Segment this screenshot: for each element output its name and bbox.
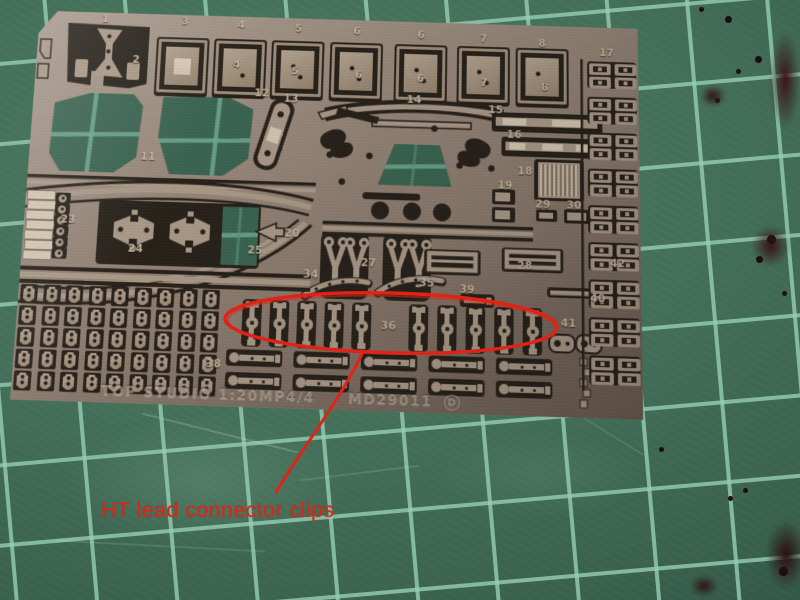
part-number-2: 2 — [132, 54, 140, 66]
photo-etch-sheet: 1234566784566781712131415161118192930232… — [10, 11, 643, 420]
mat-stain — [766, 520, 800, 590]
part-number-1: 1 — [102, 13, 110, 24]
part-number-18: 18 — [518, 165, 533, 177]
part-number-12: 12 — [254, 87, 269, 99]
mat-specks — [0, 0, 3, 3]
part-number-6: 6 — [353, 26, 361, 38]
annotation-label: HT lead connector clips — [101, 498, 334, 523]
part-number-24: 24 — [127, 243, 143, 256]
part-number-5: 5 — [295, 23, 303, 35]
part-number-17: 17 — [599, 47, 614, 59]
part-number-6: 6 — [355, 69, 363, 81]
mat-stain — [752, 225, 790, 267]
part-number-20: 20 — [284, 227, 300, 239]
part-number-34: 34 — [303, 268, 319, 281]
part-number-6: 6 — [417, 73, 425, 85]
part-number-28: 28 — [517, 260, 532, 273]
part-number-11: 11 — [140, 151, 156, 163]
part-number-13: 13 — [283, 93, 298, 105]
part-number-15: 15 — [488, 104, 503, 116]
part-number-14: 14 — [407, 94, 422, 106]
part-number-39: 39 — [459, 283, 475, 296]
photo-of-photoetch-sheet: 1234566784566781712131415161118192930232… — [0, 0, 800, 600]
mat-stain — [690, 575, 718, 597]
mat-scuff — [430, 430, 650, 520]
part-number-8: 8 — [538, 38, 545, 50]
part-number-40: 40 — [590, 293, 606, 306]
part-number-8: 8 — [541, 82, 548, 94]
part-number-38: 38 — [205, 358, 221, 371]
part-number-30: 30 — [566, 199, 581, 211]
product-code-text: MD29011 — [348, 390, 433, 410]
part-number-29: 29 — [535, 198, 550, 210]
part-number-36: 36 — [380, 320, 396, 333]
part-number-4: 4 — [238, 19, 246, 31]
part-number-42: 42 — [610, 258, 625, 271]
part-number-19: 19 — [498, 179, 513, 191]
part-number-6: 6 — [417, 30, 425, 42]
part-number-3: 3 — [181, 16, 189, 27]
mat-scuff — [60, 415, 350, 550]
mat-stain — [700, 85, 726, 107]
part-number-41: 41 — [561, 317, 577, 330]
part-number-16: 16 — [507, 129, 522, 141]
mat-stain — [770, 30, 800, 130]
part-number-23: 23 — [60, 213, 76, 225]
part-number-27: 27 — [361, 257, 377, 270]
part-number-35: 35 — [419, 277, 435, 290]
part-number-4: 4 — [233, 59, 241, 71]
part-number-7: 7 — [480, 33, 488, 45]
part-number-5: 5 — [291, 66, 299, 78]
part-number-25: 25 — [247, 244, 263, 257]
part-number-7: 7 — [480, 77, 488, 89]
circled-d-mark: D — [444, 395, 460, 411]
